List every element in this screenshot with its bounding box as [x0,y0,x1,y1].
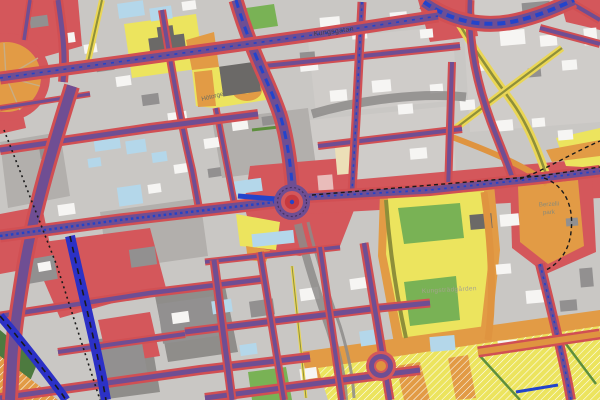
building [500,213,520,227]
building [562,59,578,70]
building [173,163,187,174]
south-roundabout [366,351,396,381]
building [57,203,75,216]
building [372,79,392,93]
building [349,277,367,290]
building [560,299,578,311]
building [499,29,525,46]
building [496,263,512,274]
building [420,28,434,38]
building [540,34,558,46]
noise-zone [398,203,464,244]
building [398,103,414,114]
building [151,151,167,163]
building [129,246,157,267]
building [410,147,428,159]
city-noise-map: Kungsgatan Hötorget Berzelii park Kungst… [0,0,600,400]
building [330,89,348,101]
building [579,267,594,287]
building [115,75,131,87]
building [171,311,189,324]
building [125,139,147,155]
sergels-torg-roundabout [276,186,309,219]
road [238,196,276,199]
building [532,117,546,127]
building [203,137,219,149]
park-label-berzelii-line1: Berzelii [539,200,560,208]
building [141,93,159,106]
park-label-berzelii-line2: park [543,209,556,217]
building [429,335,455,352]
building [558,129,574,140]
building [207,167,221,178]
building [117,184,143,206]
map-canvas[interactable]: Kungsgatan Hötorget Berzelii park Kungst… [0,0,600,400]
building [147,183,161,194]
building [87,157,101,168]
building [239,343,257,356]
